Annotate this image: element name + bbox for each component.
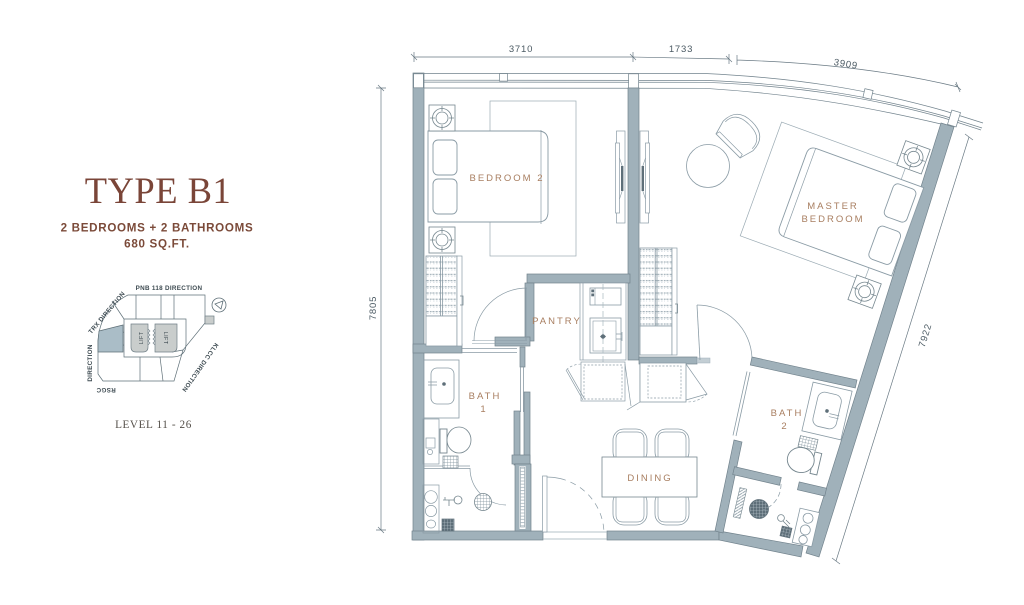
svg-text:TYPE B1: TYPE B1 bbox=[85, 170, 231, 211]
svg-text:LIFT: LIFT bbox=[139, 331, 145, 344]
svg-text:BEDROOM 2: BEDROOM 2 bbox=[469, 173, 544, 184]
svg-text:1733: 1733 bbox=[669, 44, 693, 55]
svg-text:PANTRY: PANTRY bbox=[532, 316, 582, 327]
svg-text:BEDROOM: BEDROOM bbox=[801, 214, 864, 225]
svg-text:1: 1 bbox=[480, 404, 487, 415]
svg-text:RSGC: RSGC bbox=[96, 386, 116, 393]
svg-text:MASTER: MASTER bbox=[807, 201, 859, 212]
svg-text:680 SQ.FT.: 680 SQ.FT. bbox=[124, 238, 190, 251]
svg-text:3710: 3710 bbox=[509, 44, 533, 55]
svg-text:7805: 7805 bbox=[368, 296, 379, 320]
svg-text:PNB 118 DIRECTION: PNB 118 DIRECTION bbox=[136, 285, 203, 292]
svg-text:LEVEL 11 - 26: LEVEL 11 - 26 bbox=[115, 419, 192, 431]
svg-text:LIFT: LIFT bbox=[162, 332, 168, 345]
svg-text:DINING: DINING bbox=[627, 473, 672, 484]
svg-text:DIRECTION: DIRECTION bbox=[87, 344, 94, 381]
svg-text:2: 2 bbox=[781, 421, 788, 432]
svg-text:BATH: BATH bbox=[469, 391, 502, 402]
svg-text:2 BEDROOMS + 2 BATHROOMS: 2 BEDROOMS + 2 BATHROOMS bbox=[61, 222, 254, 235]
svg-text:BATH: BATH bbox=[771, 408, 804, 419]
